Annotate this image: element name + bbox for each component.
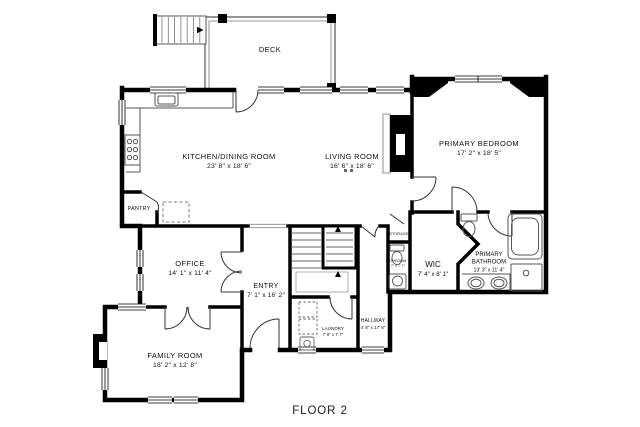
deck-post [327, 14, 336, 23]
entry-label: ENTRY [253, 283, 278, 290]
office-french-doors [221, 252, 242, 292]
hallway-dims: 4' 8" x 17' 8" [361, 325, 386, 330]
pantry-label: PANTRY [127, 206, 150, 212]
bathroom-label: BATHROOM [386, 259, 407, 263]
family-double-doors [165, 307, 210, 329]
primary-bathroom-dims: 13' 3" x 11' 4" [474, 268, 505, 274]
bathroom-dims: 3' 7" x 7' 7" [387, 264, 405, 268]
primary-bathroom-label-line2: BATHROOM [472, 260, 506, 266]
primary-bathroom-label-line1: PRIMARY [475, 252, 502, 258]
entry-dims: 7' 1" x 16' 2" [247, 292, 285, 299]
family-room-label: FAMILY ROOM [147, 351, 202, 360]
living-room-label: LIVING ROOM [325, 152, 379, 161]
floor-plan-drawing: DECK KITCHEN/DINING ROOM 23' 8" x 18' 6"… [0, 0, 640, 427]
interior-stairs [291, 226, 356, 292]
storage-label: STORAGE [389, 232, 409, 236]
dryer-dashed [299, 319, 317, 334]
kitchen-island-dashed [163, 202, 189, 222]
deck-door [236, 90, 258, 112]
bedroom-corner-block [412, 77, 448, 97]
kitchen-dining-label: KITCHEN/DINING ROOM [182, 152, 275, 161]
sink [393, 276, 403, 286]
interior-walls [122, 90, 546, 350]
laundry-label: LAUNDRY [322, 326, 344, 331]
deck-label: DECK [259, 45, 281, 54]
deck-area [153, 14, 336, 91]
hallway-door [361, 226, 379, 237]
laundry-dims: 7' 8" x 7' 7" [323, 332, 344, 337]
living-room-dims: 16' 6" x 18' 6" [330, 163, 374, 170]
shower [511, 264, 542, 291]
family-room-dims: 18' 2" x 12' 8" [153, 362, 197, 369]
laundry-door [330, 297, 352, 319]
hallway-label: HALLWAY [361, 318, 386, 324]
bedroom-corner-block [510, 77, 546, 97]
deck-stairs [153, 14, 206, 46]
primary-bedroom-dims: 17' 2" x 18' 5" [457, 150, 501, 157]
chimney [93, 334, 107, 368]
floor-plan-page: DECK KITCHEN/DINING ROOM 23' 8" x 18' 6"… [0, 0, 640, 427]
wic-label: WIC [425, 260, 441, 269]
washer-dashed [299, 302, 317, 317]
toilet-tank [390, 245, 404, 251]
storage-door [390, 214, 404, 224]
kitchen-dining-dims: 23' 8" x 18' 6" [207, 163, 251, 170]
office-dims: 14' 1" x 11' 4" [168, 270, 212, 277]
bedroom-door [412, 177, 436, 201]
wic-door [452, 187, 477, 212]
primary-bedroom-label: PRIMARY BEDROOM [439, 139, 519, 148]
wic-dims: 7' 4" x 8' 1" [418, 271, 449, 278]
laundry-fixtures [299, 302, 317, 350]
deck-post [218, 14, 227, 23]
office-label: OFFICE [175, 259, 205, 268]
toilet-tank [461, 214, 477, 221]
floor-title: FLOOR 2 [292, 405, 348, 417]
fireplace [383, 114, 412, 173]
front-door [250, 319, 279, 348]
